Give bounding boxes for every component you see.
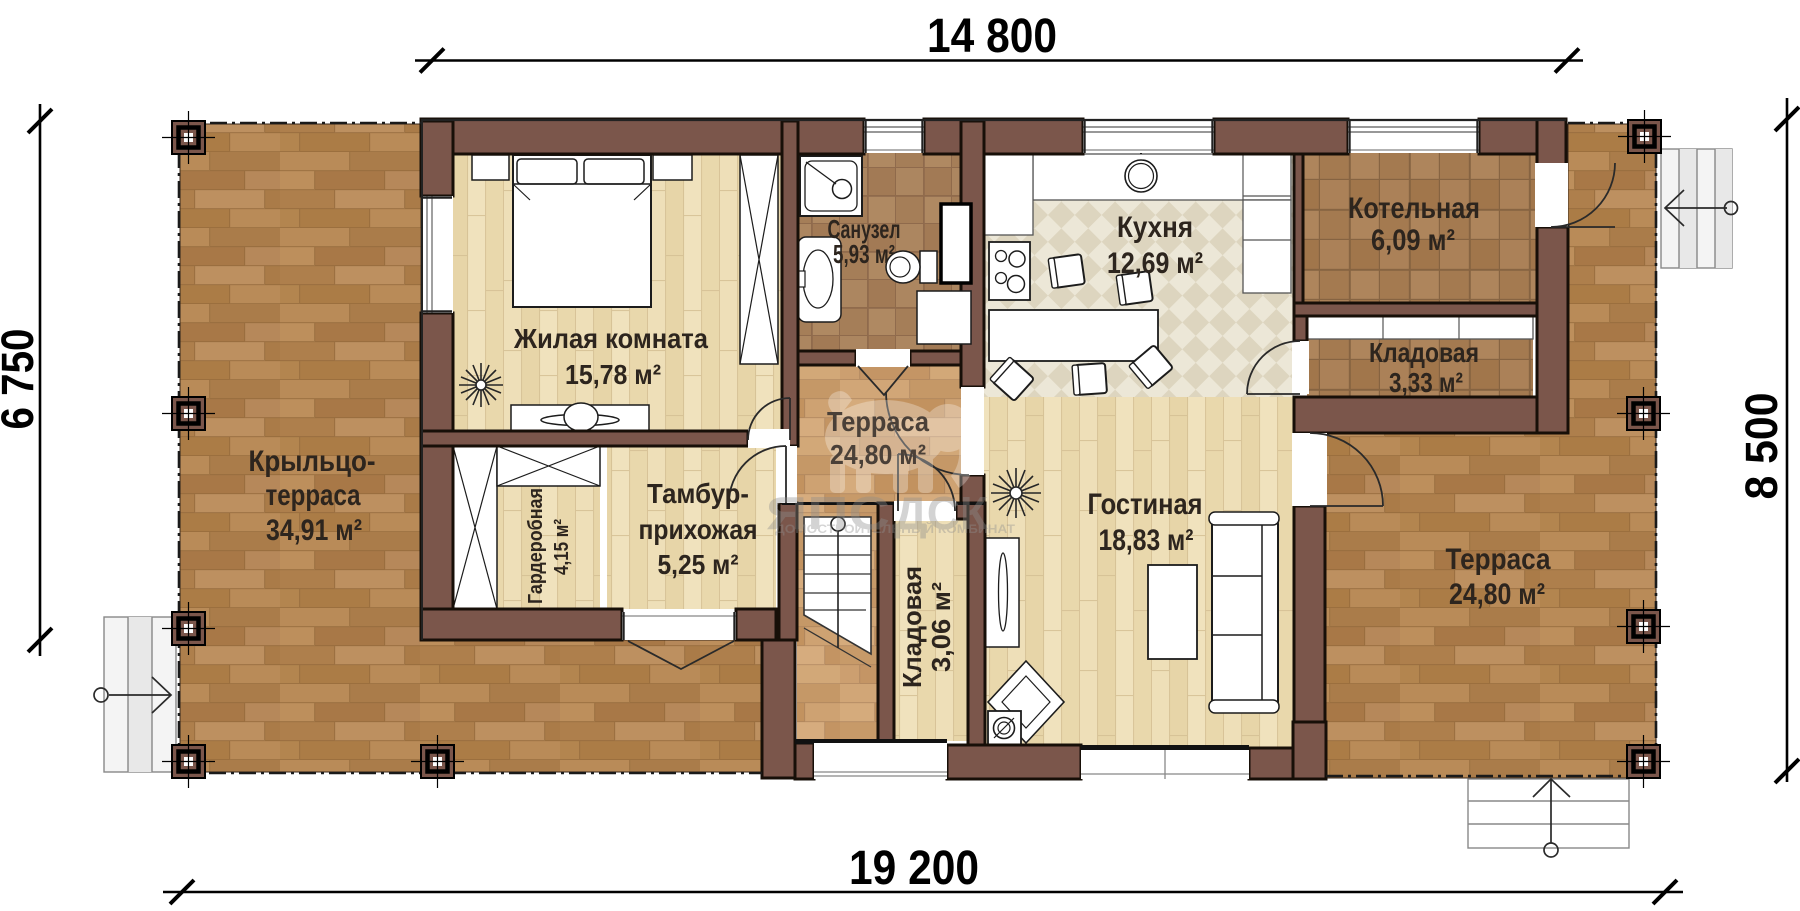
svg-text:Кладовая: Кладовая [1369,337,1479,368]
svg-text:Гостиная: Гостиная [1088,488,1203,521]
svg-text:18,83 м²: 18,83 м² [1099,524,1194,557]
svg-text:Крыльцо-: Крыльцо- [249,445,376,478]
svg-text:4,15 м²: 4,15 м² [551,519,573,575]
svg-text:34,91 м²: 34,91 м² [266,514,362,547]
svg-text:14 800: 14 800 [927,10,1057,63]
svg-text:прихожая: прихожая [639,514,758,545]
svg-text:6,09 м²: 6,09 м² [1371,224,1455,257]
svg-text:Терраса: Терраса [827,406,929,437]
svg-text:5,93 м²: 5,93 м² [833,239,895,269]
svg-text:ДОМОСТРОИТЕЛЬНЫЙ КОМБИНАТ: ДОМОСТРОИТЕЛЬНЫЙ КОМБИНАТ [775,521,1016,536]
svg-text:24,80 м²: 24,80 м² [830,439,926,470]
svg-text:Гардеробная: Гардеробная [525,488,547,604]
svg-text:8 500: 8 500 [1736,393,1787,500]
svg-text:Котельная: Котельная [1348,192,1480,225]
svg-text:3,33 м²: 3,33 м² [1389,367,1463,398]
svg-text:Кухня: Кухня [1117,211,1193,244]
svg-text:Жилая комната: Жилая комната [513,323,708,354]
svg-text:терраса: терраса [266,479,361,512]
svg-text:15,78 м²: 15,78 м² [565,359,661,390]
svg-text:Терраса: Терраса [1446,543,1551,576]
svg-text:Тамбур-: Тамбур- [647,478,749,509]
svg-text:24,80 м²: 24,80 м² [1449,578,1545,611]
svg-text:12,69 м²: 12,69 м² [1107,247,1203,280]
svg-text:19 200: 19 200 [849,842,979,895]
svg-text:Кладовая: Кладовая [897,566,927,688]
svg-text:3,06 м²: 3,06 м² [926,582,956,672]
svg-text:5,25 м²: 5,25 м² [658,549,739,580]
svg-text:6 750: 6 750 [0,329,43,430]
